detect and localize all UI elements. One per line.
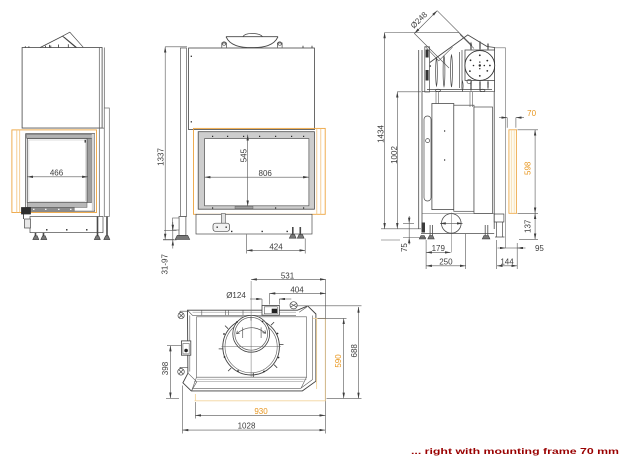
svg-text:144: 144 (500, 257, 514, 266)
svg-text:424: 424 (269, 242, 283, 251)
svg-text:31-97: 31-97 (160, 254, 169, 275)
svg-text:930: 930 (254, 407, 268, 416)
svg-text:466: 466 (50, 169, 64, 178)
svg-text:70: 70 (527, 109, 536, 118)
svg-text:806: 806 (259, 169, 273, 178)
svg-text:137: 137 (524, 219, 533, 233)
svg-text:398: 398 (161, 361, 170, 375)
svg-text:1337: 1337 (156, 148, 165, 166)
svg-text:1028: 1028 (238, 422, 256, 431)
svg-text:545: 545 (239, 148, 248, 162)
svg-text:531: 531 (281, 271, 295, 280)
svg-text:598: 598 (524, 161, 533, 175)
svg-text:250: 250 (439, 257, 453, 266)
svg-text:75: 75 (400, 243, 409, 252)
svg-text:688: 688 (350, 344, 359, 358)
svg-text:1434: 1434 (377, 125, 386, 143)
svg-text:590: 590 (334, 354, 343, 368)
svg-text:95: 95 (535, 244, 544, 253)
svg-text:... right with mounting frame: ... right with mounting frame 70 mm (411, 447, 619, 456)
svg-text:1002: 1002 (390, 146, 399, 164)
svg-text:Ø124: Ø124 (226, 291, 246, 300)
svg-text:Ø248: Ø248 (409, 10, 430, 31)
svg-text:179: 179 (432, 244, 446, 253)
svg-text:404: 404 (290, 285, 304, 294)
